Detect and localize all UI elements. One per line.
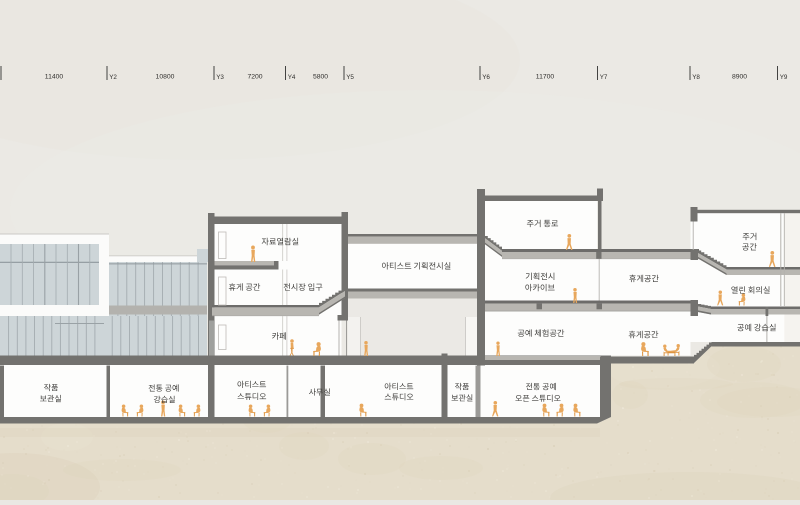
svg-text:8900: 8900 [732, 74, 747, 81]
svg-text:11700: 11700 [536, 74, 555, 81]
svg-text:Y6: Y6 [482, 74, 490, 81]
svg-text:Y8: Y8 [692, 74, 700, 81]
svg-text:Y4: Y4 [288, 74, 296, 81]
svg-text:Y7: Y7 [600, 74, 608, 81]
svg-text:Y2: Y2 [109, 74, 117, 81]
svg-text:5800: 5800 [313, 74, 328, 81]
svg-text:7200: 7200 [247, 74, 262, 81]
svg-text:Y5: Y5 [346, 74, 354, 81]
svg-text:11400: 11400 [45, 74, 64, 81]
svg-text:Y3: Y3 [216, 74, 224, 81]
svg-text:Y9: Y9 [780, 74, 788, 81]
svg-text:10800: 10800 [156, 74, 175, 81]
